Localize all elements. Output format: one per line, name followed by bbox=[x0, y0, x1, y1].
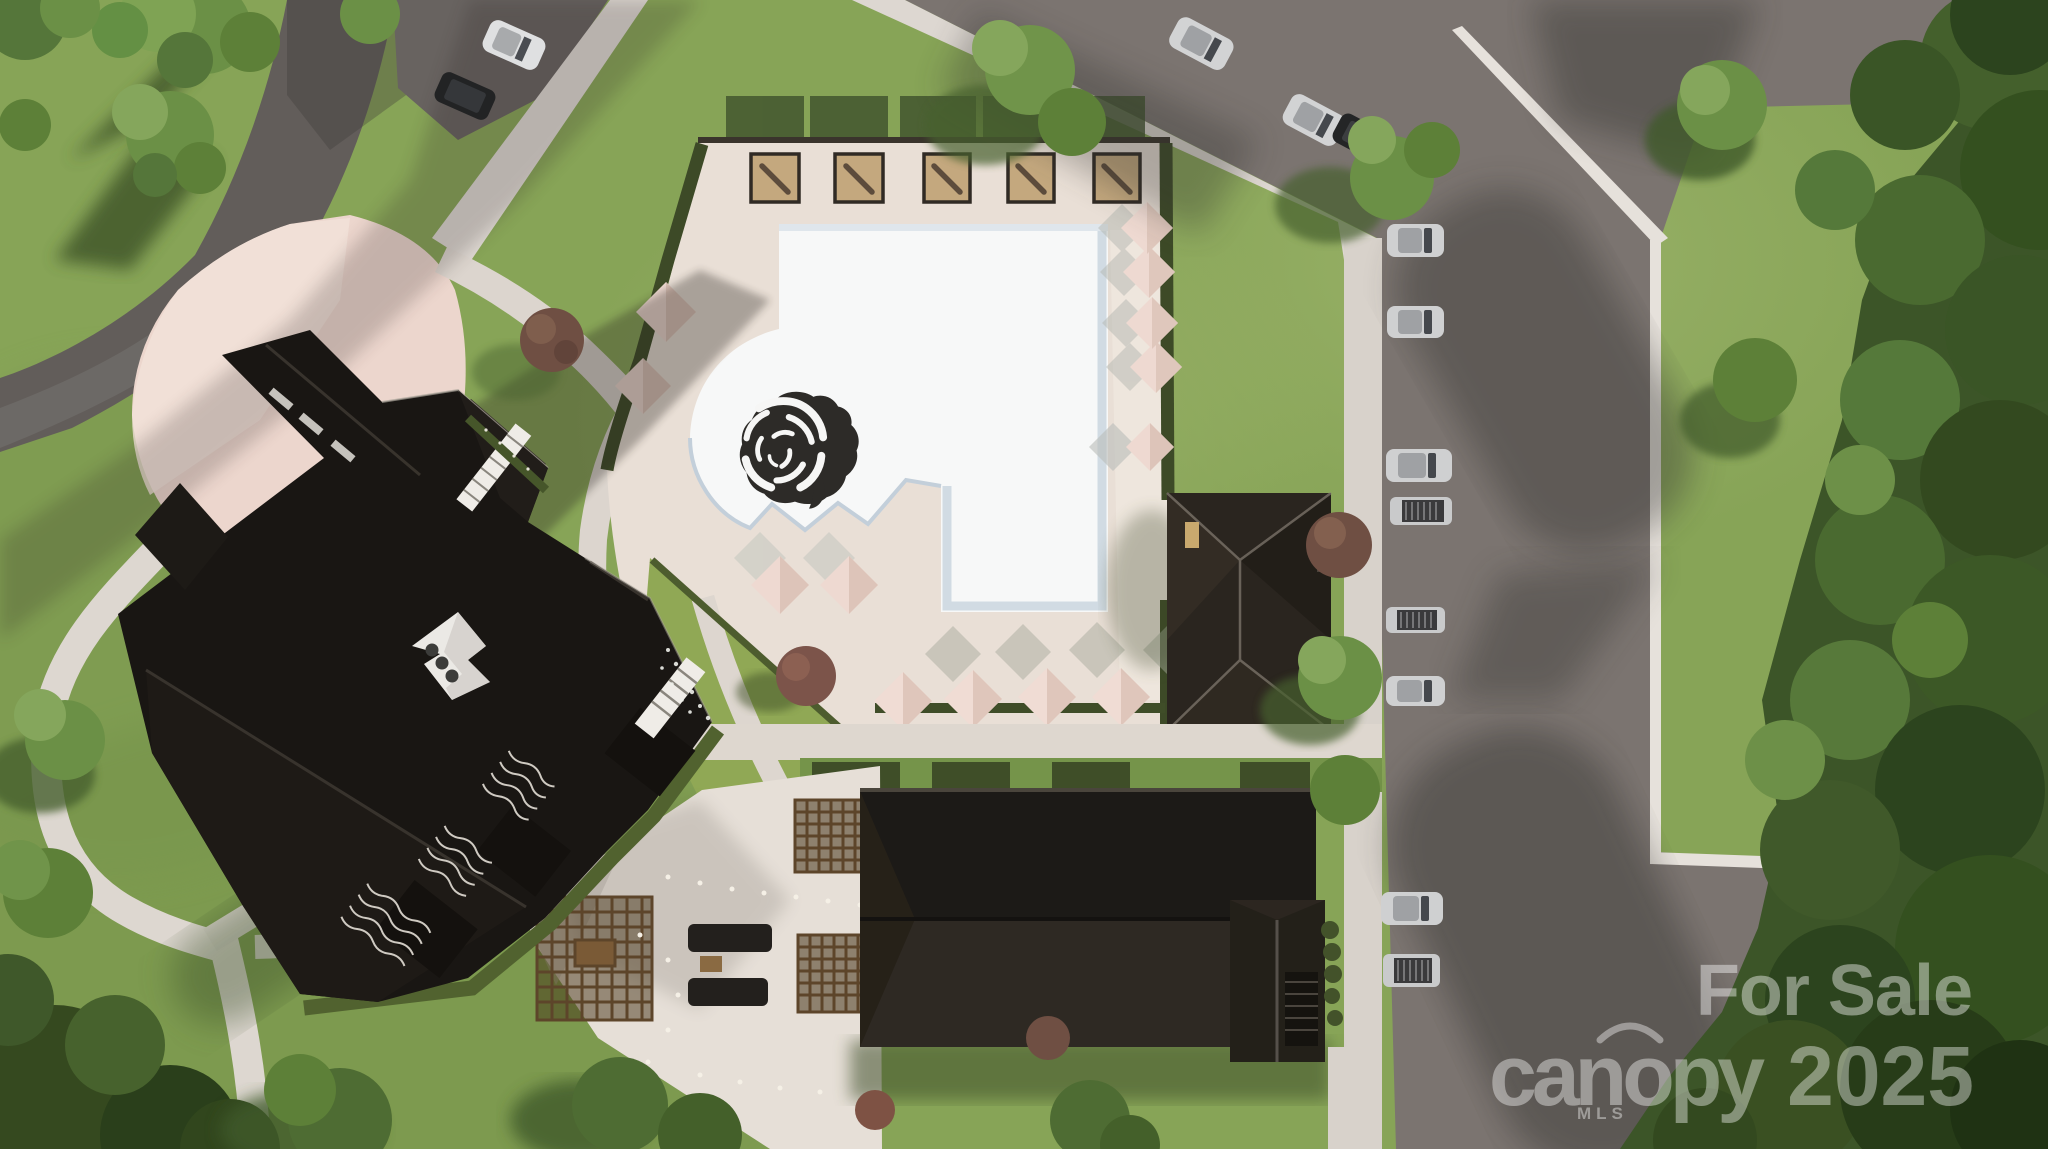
svg-text:2025: 2025 bbox=[1787, 1029, 1974, 1123]
svg-text:For Sale: For Sale bbox=[1696, 951, 1972, 1031]
svg-text:MLS: MLS bbox=[1577, 1104, 1628, 1123]
